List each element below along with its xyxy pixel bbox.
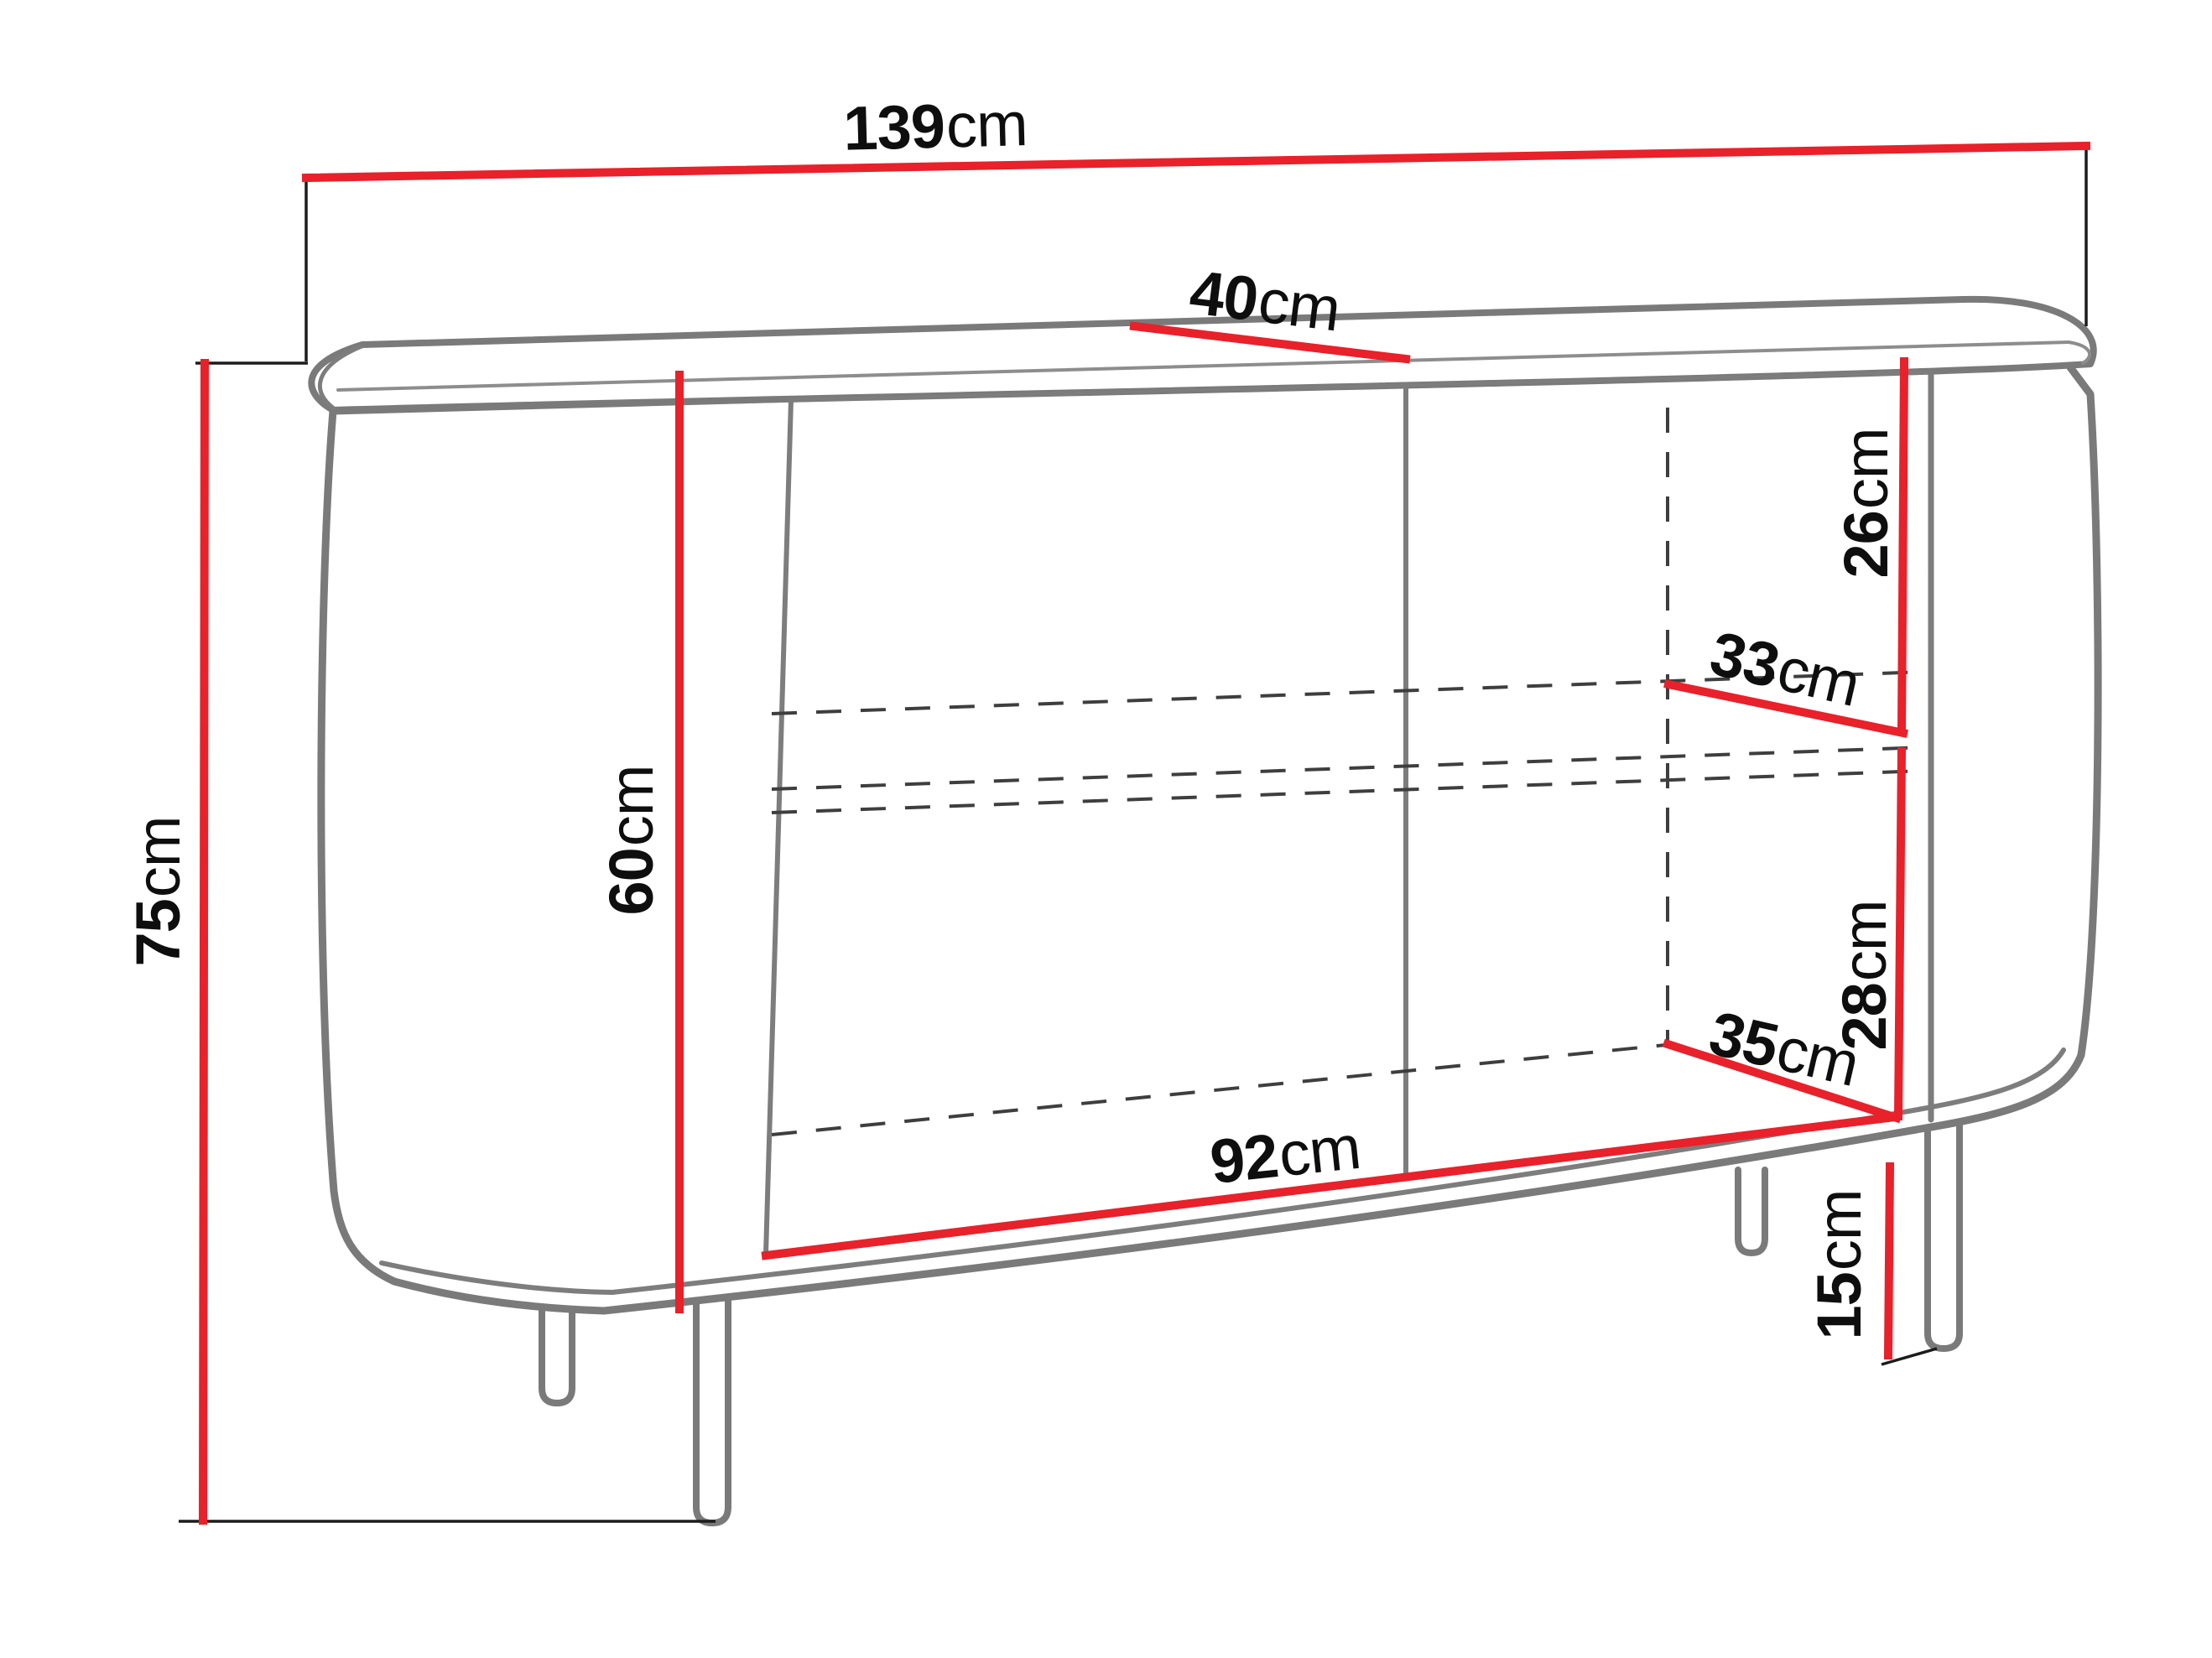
back-right-leg	[1738, 1170, 1765, 1253]
front-left-leg	[696, 1292, 728, 1523]
sideboard-dimension-diagram: 139cm 40cm 75cm 60cm 26cm 33cm 28cm 35cm…	[0, 0, 2212, 1658]
dimension-line-15cm-leg-height	[1888, 1167, 1890, 1355]
label-75cm-height: 75cm	[123, 817, 193, 967]
dimension-line-26cm-upper-compartment	[1902, 361, 1904, 731]
front-right-leg	[1928, 1122, 1960, 1349]
dimension-line-75cm-height	[203, 363, 205, 1520]
label-26cm-upper-compartment: 26cm	[1831, 429, 1901, 579]
back-left-leg	[542, 1298, 572, 1403]
dimension-line-139cm-width	[306, 146, 2086, 178]
label-139cm-width: 139cm	[842, 89, 1028, 164]
dimension-diagram-page: 139cm 40cm 75cm 60cm 26cm 33cm 28cm 35cm…	[0, 0, 2212, 1658]
label-60cm-interior-height: 60cm	[596, 766, 666, 916]
label-15cm-leg-height: 15cm	[1804, 1190, 1874, 1340]
